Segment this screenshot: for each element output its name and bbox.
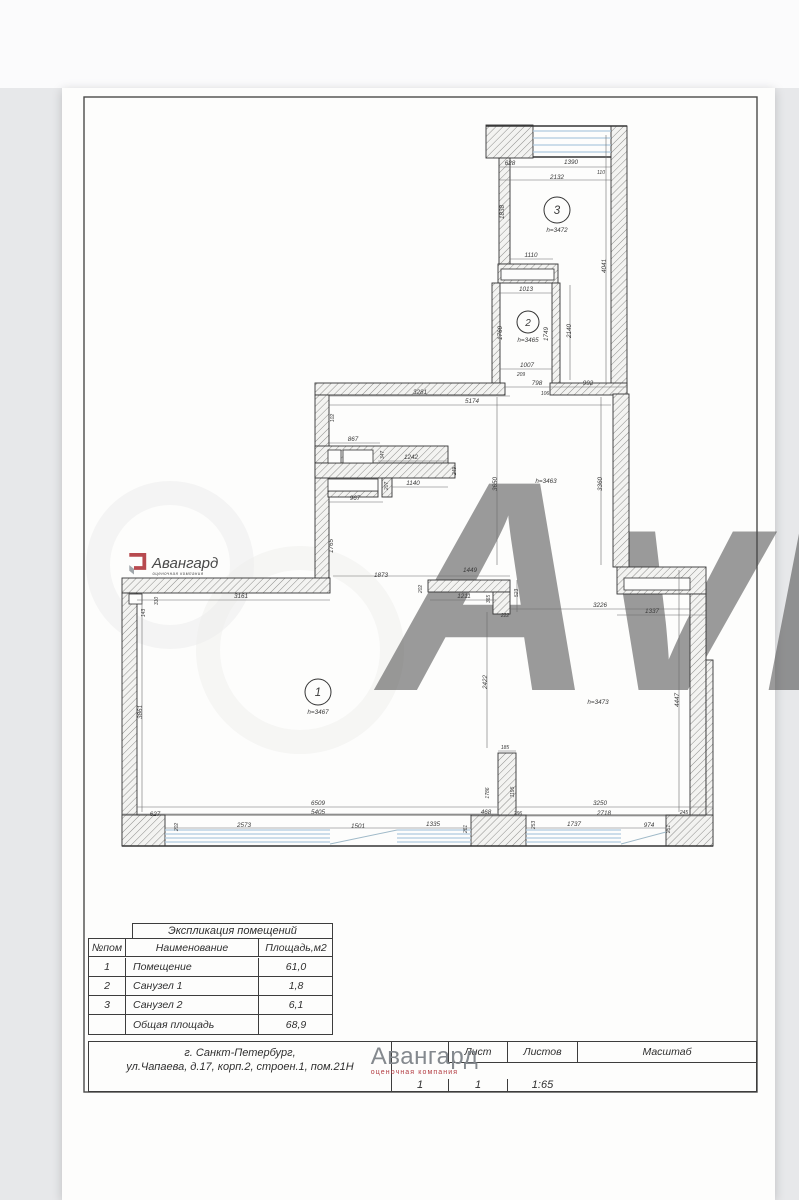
table-cell: Санузел 2 (126, 996, 259, 1015)
sheets-value: 1 (448, 1079, 507, 1091)
dim-label: 1110 (524, 252, 538, 259)
dim-label: 627 (150, 811, 161, 818)
dim-label: 468 (481, 809, 492, 816)
room-height-label: h=3463 (535, 478, 557, 485)
dim-label: 1449 (463, 567, 478, 574)
table-cell: 1 (89, 958, 126, 977)
dim-label: 6509 (311, 800, 326, 807)
dim-label: 1211 (457, 593, 471, 600)
dim-label: 245 (679, 810, 689, 816)
avangard-watermark: Авангард оценочная компания (129, 553, 218, 576)
dim-label: 1737 (567, 821, 582, 828)
dim-label: 209 (516, 372, 526, 378)
dim-label: 3360 (597, 477, 604, 492)
room-number: 2 (524, 318, 531, 329)
dim-label: 202 (418, 585, 424, 595)
room-height-label: h=3465 (517, 337, 539, 344)
dim-label: 1838 (499, 205, 506, 220)
avangard-cube-icon (129, 553, 146, 575)
dim-label: 867 (348, 436, 359, 443)
dim-label: 1007 (520, 362, 535, 369)
table-cell: 68,9 (259, 1015, 333, 1034)
dim-label: 296 (513, 811, 523, 817)
dim-label: 3861 (137, 705, 144, 719)
dim-label: 102 (330, 414, 336, 423)
dim-label: 3226 (593, 602, 608, 609)
dim-label: 1337 (645, 608, 660, 615)
dim-label: 967 (350, 495, 361, 502)
dim-label: 249 (452, 467, 458, 477)
dim-label: 628 (505, 160, 516, 167)
dim-label: 2573 (236, 822, 252, 829)
svg-text:Авангард: Авангард (151, 555, 218, 572)
dim-label: 1242 (404, 454, 419, 461)
dim-label: 310 (154, 597, 160, 606)
scale-value: 1:65 (507, 1079, 577, 1091)
dim-label: 992 (583, 380, 594, 387)
dim-label: 974 (644, 822, 655, 829)
object-address: г. Санкт-Петербург, ул.Чапаева, д.17, ко… (89, 1042, 391, 1079)
sheet-value: 1 (391, 1079, 448, 1091)
address-line-2: ул.Чапаева, д.17, корп.2, строен.1, пом.… (126, 1061, 354, 1075)
dim-label: 1335 (426, 821, 441, 828)
dim-label: 202 (174, 823, 180, 833)
dim-label: 1765 (328, 539, 335, 554)
dim-label: 1786 (485, 787, 491, 798)
dim-label: 523 (514, 589, 520, 598)
dim-label: 798 (532, 380, 543, 387)
dim-label: 4447 (674, 693, 681, 708)
table-cell: Помещение (126, 958, 259, 977)
sheets-label: Листов (507, 1042, 577, 1063)
dim-label: 2718 (596, 810, 612, 817)
address-line-1: г. Санкт-Петербург, (184, 1047, 295, 1061)
screenshot: Avito (0, 0, 799, 1200)
table-cell: Общая площадь (126, 1015, 259, 1034)
dim-label: 5405 (311, 809, 326, 816)
table-cell: 61,0 (259, 958, 333, 977)
table-cell: 1,8 (259, 977, 333, 996)
table-cell: №пом (89, 939, 126, 957)
dim-label: 185 (501, 745, 510, 751)
dim-label: 4041 (601, 259, 608, 273)
table-caption: Экспликация помещений (132, 923, 333, 939)
dim-label: 1501 (351, 823, 365, 830)
title-block: г. Санкт-Петербург, ул.Чапаева, д.17, ко… (88, 1041, 757, 1092)
dim-label: 2140 (566, 324, 573, 340)
dim-label: 3281 (413, 389, 427, 396)
dim-label: 3650 (492, 477, 499, 492)
table-cell (89, 1015, 126, 1034)
table-cell: 2 (89, 977, 126, 996)
dim-label: 253 (531, 821, 537, 831)
dim-label: 3161 (234, 593, 248, 600)
dim-label: 1749 (543, 327, 550, 342)
room-height-label: h=3473 (587, 699, 609, 706)
table-cell: Санузел 1 (126, 977, 259, 996)
company-logo: Авангард оценочная компания (391, 1042, 448, 1079)
dim-label: 110 (597, 170, 605, 176)
dim-label: 365 (486, 595, 492, 604)
table-cell: Площадь,м2 (259, 939, 333, 957)
company-name: Авангард (371, 1046, 478, 1068)
dim-label: 143 (141, 609, 147, 618)
company-tagline: оценочная компания (371, 1069, 478, 1076)
table-cell: Наименование (126, 939, 259, 957)
dim-label: 1760 (497, 326, 504, 341)
dim-label: 347 (380, 451, 386, 460)
room-height-label: h=3467 (307, 709, 329, 716)
dim-label: 1873 (374, 572, 389, 579)
dim-label: 1140 (406, 480, 420, 487)
svg-text:оценочная компания: оценочная компания (153, 571, 204, 576)
dim-label: 261 (463, 825, 469, 835)
dim-label: 222 (500, 613, 510, 619)
table-cell: 3 (89, 996, 126, 1015)
dim-label: 251 (666, 825, 672, 835)
dim-label: 2422 (482, 675, 489, 691)
table-body: №помНаименованиеПлощадь,м21Помещение61,0… (88, 938, 333, 1035)
dim-label: 2132 (549, 174, 565, 181)
scale-label: Масштаб (577, 1042, 756, 1063)
dim-label: 5174 (465, 398, 480, 405)
room-number: 3 (554, 205, 561, 217)
dim-label: 207 (384, 482, 390, 492)
table-cell: 6,1 (259, 996, 333, 1015)
dim-label: 1390 (564, 159, 579, 166)
dim-label: 1195 (510, 786, 516, 797)
dim-label: 1013 (519, 286, 534, 293)
dim-label: 3250 (593, 800, 608, 807)
room-number: 1 (315, 687, 321, 699)
room-height-label: h=3472 (546, 227, 568, 234)
dim-label: 106 (541, 391, 550, 397)
